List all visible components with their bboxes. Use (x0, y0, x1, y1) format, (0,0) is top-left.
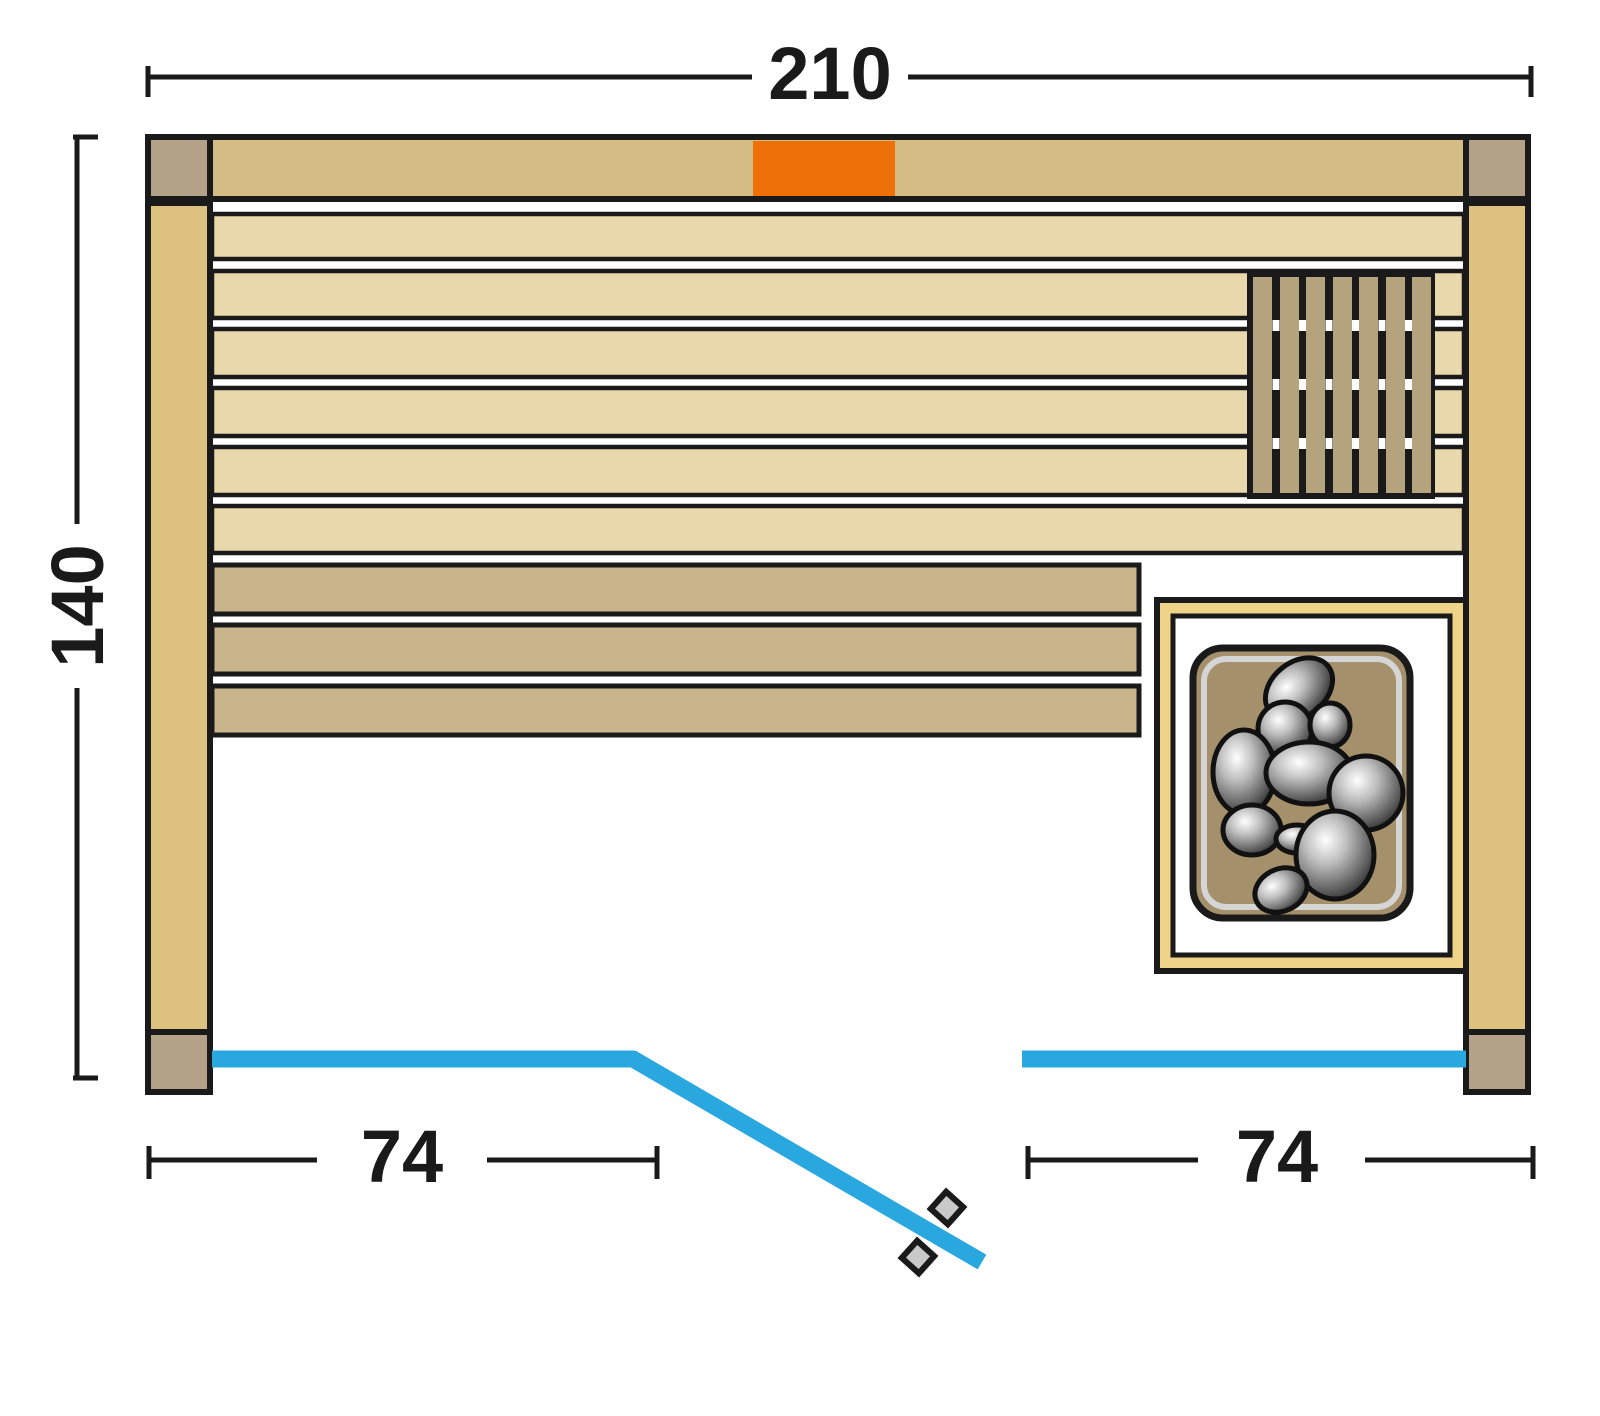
wall-plank-row (212, 506, 1464, 553)
stone (1223, 805, 1281, 855)
dimension-front-left: 74 (149, 1115, 657, 1198)
wall-post-right (1466, 203, 1528, 1092)
door-handle (902, 1241, 934, 1273)
heater (1157, 600, 1466, 971)
dimension-total-height: 140 (36, 137, 119, 1078)
corner-post-top-right (1466, 137, 1528, 199)
bench-plank (212, 625, 1139, 674)
bench-plank (212, 565, 1139, 614)
sauna-floorplan-diagram: 210 140 74 74 (0, 0, 1600, 1416)
backrest-slat (1386, 277, 1405, 493)
floorplan-drawing: 210 140 74 74 (0, 0, 1600, 1416)
post-base-left (148, 1032, 210, 1092)
dimension-total-width: 210 (148, 32, 1531, 115)
bench-plank (212, 686, 1139, 735)
sauna-light (753, 141, 895, 196)
door-handle (931, 1192, 963, 1224)
post-base-right (1466, 1032, 1528, 1092)
backrest-slat (1359, 277, 1378, 493)
backrest-slat (1253, 277, 1272, 493)
corner-post-top-left (148, 137, 210, 199)
backrest-panel (1247, 271, 1435, 499)
wall-plank-row (212, 214, 1464, 259)
total-width-label: 210 (768, 32, 891, 115)
front-left-label: 74 (361, 1115, 443, 1198)
bench-planks (212, 565, 1139, 735)
dimension-front-right: 74 (1028, 1115, 1533, 1198)
wall-post-left (148, 203, 210, 1092)
backrest-slat (1412, 277, 1431, 493)
backrest-slat (1280, 277, 1299, 493)
front-right-label: 74 (1236, 1115, 1318, 1198)
backrest-slat (1306, 277, 1325, 493)
total-height-label: 140 (36, 544, 119, 667)
backrest-slat (1333, 277, 1352, 493)
